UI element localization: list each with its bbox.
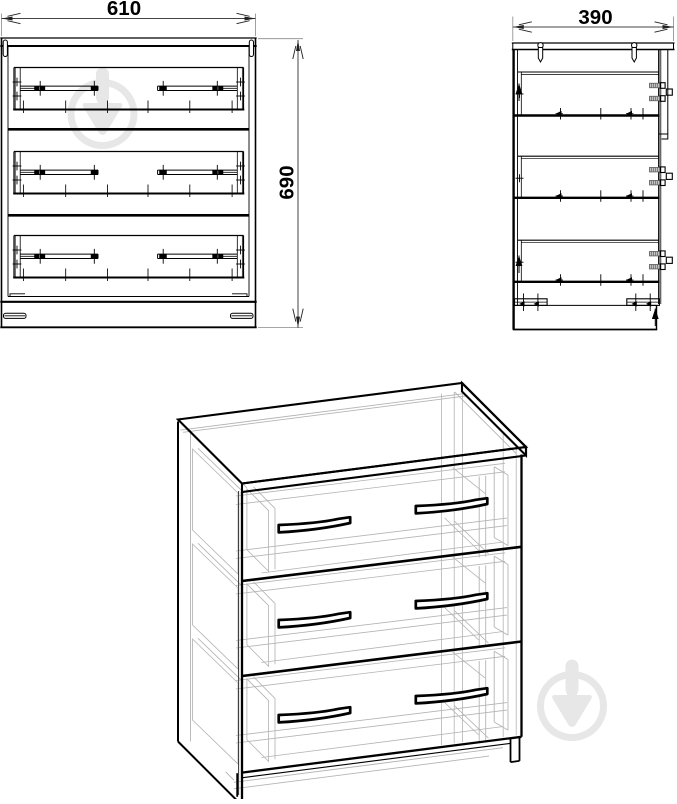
svg-text:610: 610 <box>107 0 141 20</box>
svg-text:690: 690 <box>276 165 299 199</box>
svg-text:390: 390 <box>578 6 612 29</box>
